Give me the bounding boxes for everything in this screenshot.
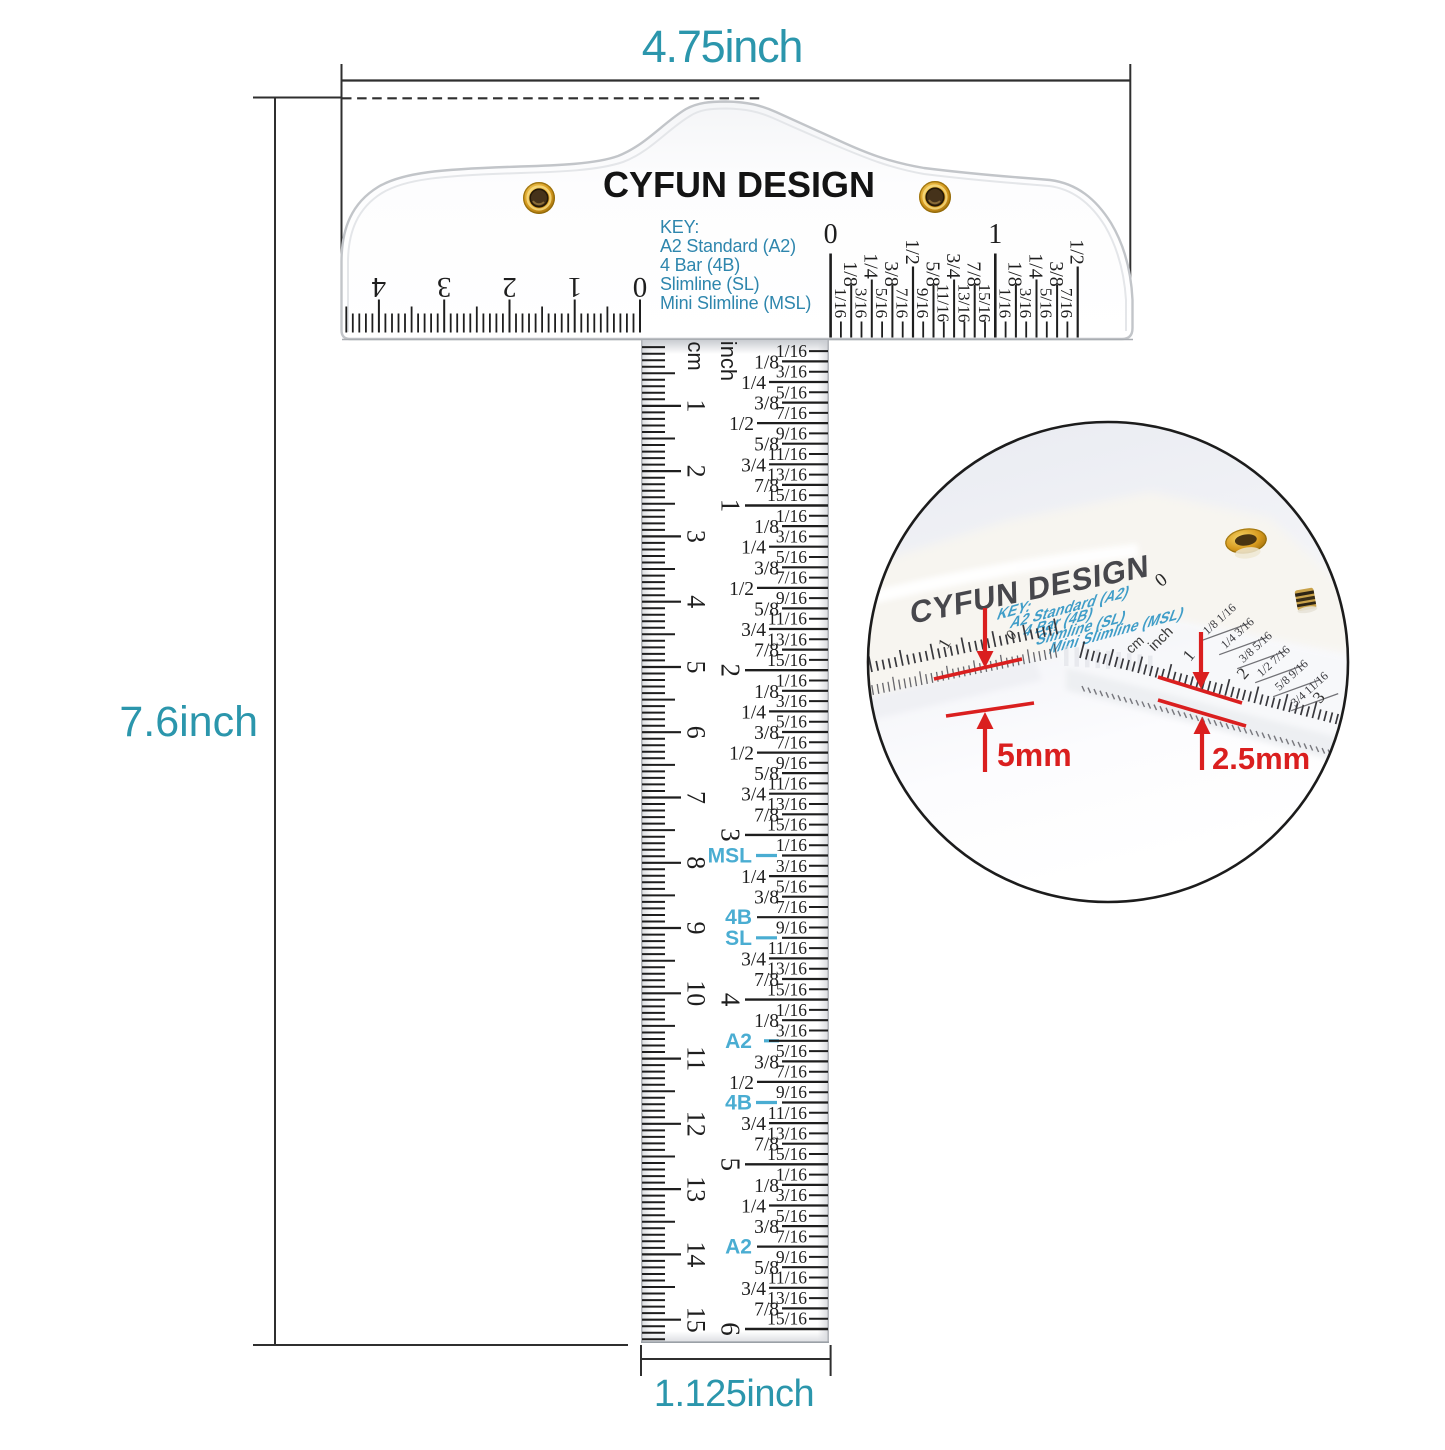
svg-text:4: 4: [682, 595, 711, 608]
svg-text:1/16: 1/16: [776, 1000, 807, 1020]
svg-text:5: 5: [682, 661, 711, 674]
svg-text:1/4: 1/4: [1024, 253, 1046, 279]
svg-text:1: 1: [682, 399, 711, 412]
svg-text:1: 1: [567, 271, 582, 303]
svg-text:9/16: 9/16: [776, 423, 807, 443]
svg-text:3/16: 3/16: [851, 288, 870, 318]
svg-text:cm: cm: [683, 341, 708, 370]
svg-text:SL: SL: [725, 927, 752, 950]
svg-text:7/16: 7/16: [1057, 288, 1076, 318]
svg-text:1/2: 1/2: [901, 239, 923, 265]
svg-text:Slimline (SL): Slimline (SL): [660, 274, 759, 294]
svg-text:15: 15: [682, 1307, 711, 1333]
svg-text:4B: 4B: [725, 906, 752, 929]
svg-text:7/16: 7/16: [776, 1226, 807, 1246]
svg-text:0: 0: [633, 271, 648, 303]
svg-text:1/2: 1/2: [1066, 239, 1088, 265]
svg-text:15/16: 15/16: [767, 815, 807, 835]
svg-text:7/16: 7/16: [776, 897, 807, 917]
svg-text:7/16: 7/16: [776, 1062, 807, 1082]
svg-text:1: 1: [988, 219, 1002, 250]
svg-text:3/16: 3/16: [1016, 288, 1035, 318]
svg-text:12: 12: [682, 1111, 711, 1137]
svg-text:2.5mm: 2.5mm: [1212, 741, 1310, 776]
svg-text:3/16: 3/16: [776, 856, 807, 876]
svg-text:4B: 4B: [725, 1092, 752, 1115]
svg-text:5/16: 5/16: [776, 712, 807, 732]
svg-text:3/16: 3/16: [776, 1185, 807, 1205]
svg-text:5/16: 5/16: [776, 547, 807, 567]
svg-text:15/16: 15/16: [767, 1144, 807, 1164]
svg-text:3/4: 3/4: [741, 949, 766, 970]
svg-text:3/4: 3/4: [741, 455, 766, 476]
svg-text:13/16: 13/16: [954, 284, 973, 323]
svg-text:9/16: 9/16: [776, 588, 807, 608]
svg-text:1/4: 1/4: [741, 1197, 766, 1218]
svg-text:3: 3: [437, 271, 452, 303]
svg-text:3: 3: [715, 828, 745, 842]
svg-text:5mm: 5mm: [997, 737, 1072, 773]
svg-text:11/16: 11/16: [768, 1268, 807, 1288]
svg-text:13: 13: [682, 1176, 711, 1202]
svg-text:5: 5: [715, 1158, 745, 1172]
svg-text:1/16: 1/16: [776, 341, 807, 361]
svg-text:3/4: 3/4: [741, 1114, 766, 1135]
svg-text:1/4: 1/4: [741, 538, 766, 559]
svg-text:1/16: 1/16: [776, 835, 807, 855]
svg-text:15/16: 15/16: [975, 284, 994, 323]
svg-text:4: 4: [715, 993, 745, 1007]
svg-text:1/16: 1/16: [776, 671, 807, 691]
svg-text:4.75inch: 4.75inch: [642, 21, 803, 72]
svg-text:1/2: 1/2: [729, 579, 754, 600]
svg-text:8: 8: [682, 856, 711, 869]
svg-text:11: 11: [682, 1046, 711, 1071]
svg-text:11/16: 11/16: [768, 773, 807, 793]
svg-text:11/16: 11/16: [768, 609, 807, 629]
svg-text:1/8: 1/8: [839, 261, 861, 287]
svg-text:6: 6: [682, 726, 711, 739]
svg-text:3/4: 3/4: [741, 620, 766, 641]
svg-text:MSL: MSL: [708, 845, 753, 868]
svg-text:7/16: 7/16: [776, 568, 807, 588]
svg-text:3/16: 3/16: [776, 362, 807, 382]
svg-text:11/16: 11/16: [768, 1103, 807, 1123]
svg-text:7/16: 7/16: [893, 288, 912, 318]
svg-text:3/16: 3/16: [776, 1021, 807, 1041]
svg-text:15/16: 15/16: [767, 979, 807, 999]
svg-text:9/16: 9/16: [776, 753, 807, 773]
svg-text:A2: A2: [725, 1030, 752, 1053]
svg-text:3: 3: [682, 530, 711, 543]
svg-text:15/16: 15/16: [767, 1309, 807, 1329]
svg-text:4 Bar (4B): 4 Bar (4B): [660, 255, 740, 275]
svg-text:1/16: 1/16: [776, 1165, 807, 1185]
svg-text:11/16: 11/16: [768, 938, 807, 958]
svg-text:5/16: 5/16: [1037, 288, 1056, 318]
svg-text:KEY:: KEY:: [660, 217, 699, 237]
svg-text:3/8: 3/8: [1045, 261, 1067, 287]
svg-text:2: 2: [682, 465, 711, 478]
svg-text:4: 4: [371, 271, 386, 303]
svg-text:9/16: 9/16: [776, 1247, 807, 1267]
svg-text:9/16: 9/16: [913, 288, 932, 318]
svg-text:1/4: 1/4: [741, 867, 766, 888]
svg-text:1/4: 1/4: [741, 702, 766, 723]
svg-text:5/8: 5/8: [921, 261, 943, 287]
svg-text:5/16: 5/16: [776, 876, 807, 896]
svg-text:9/16: 9/16: [776, 1082, 807, 1102]
svg-text:A2: A2: [725, 1236, 752, 1259]
svg-text:3/4: 3/4: [942, 253, 964, 279]
svg-text:7/16: 7/16: [776, 403, 807, 423]
svg-text:5/16: 5/16: [776, 1206, 807, 1226]
svg-text:1/16: 1/16: [996, 288, 1015, 318]
svg-text:7/16: 7/16: [776, 732, 807, 752]
svg-text:1/16: 1/16: [831, 288, 850, 318]
svg-text:3/16: 3/16: [776, 691, 807, 711]
svg-text:1/16: 1/16: [776, 506, 807, 526]
svg-text:5/16: 5/16: [872, 288, 891, 318]
svg-text:1.125inch: 1.125inch: [654, 1373, 814, 1415]
svg-text:0: 0: [824, 219, 838, 250]
svg-text:1/8: 1/8: [1004, 261, 1026, 287]
svg-text:3/8: 3/8: [880, 261, 902, 287]
svg-text:1/2: 1/2: [729, 744, 754, 765]
svg-text:1/2: 1/2: [729, 414, 754, 435]
svg-text:CYFUN DESIGN: CYFUN DESIGN: [603, 164, 875, 205]
svg-text:15/16: 15/16: [767, 485, 807, 505]
svg-text:11/16: 11/16: [934, 284, 953, 322]
svg-text:14: 14: [682, 1241, 711, 1267]
svg-text:2: 2: [715, 663, 745, 677]
svg-text:7: 7: [682, 791, 711, 804]
svg-text:10: 10: [682, 980, 711, 1006]
svg-text:9: 9: [682, 922, 711, 935]
svg-text:2: 2: [502, 271, 517, 303]
svg-text:Mini Slimline (MSL): Mini Slimline (MSL): [660, 293, 811, 313]
svg-text:A2 Standard (A2): A2 Standard (A2): [660, 236, 796, 256]
svg-text:5/16: 5/16: [776, 1041, 807, 1061]
svg-text:5/16: 5/16: [776, 382, 807, 402]
svg-text:1/4: 1/4: [860, 253, 882, 279]
svg-text:6: 6: [715, 1322, 745, 1336]
svg-text:7.6inch: 7.6inch: [119, 698, 258, 746]
svg-text:3/4: 3/4: [741, 785, 766, 806]
svg-text:15/16: 15/16: [767, 650, 807, 670]
svg-text:3/4: 3/4: [741, 1279, 766, 1300]
svg-text:inch: inch: [716, 341, 741, 381]
svg-text:1: 1: [715, 499, 745, 513]
svg-text:9/16: 9/16: [776, 918, 807, 938]
svg-text:1/4: 1/4: [741, 373, 766, 394]
svg-text:3/16: 3/16: [776, 526, 807, 546]
svg-text:11/16: 11/16: [768, 444, 807, 464]
